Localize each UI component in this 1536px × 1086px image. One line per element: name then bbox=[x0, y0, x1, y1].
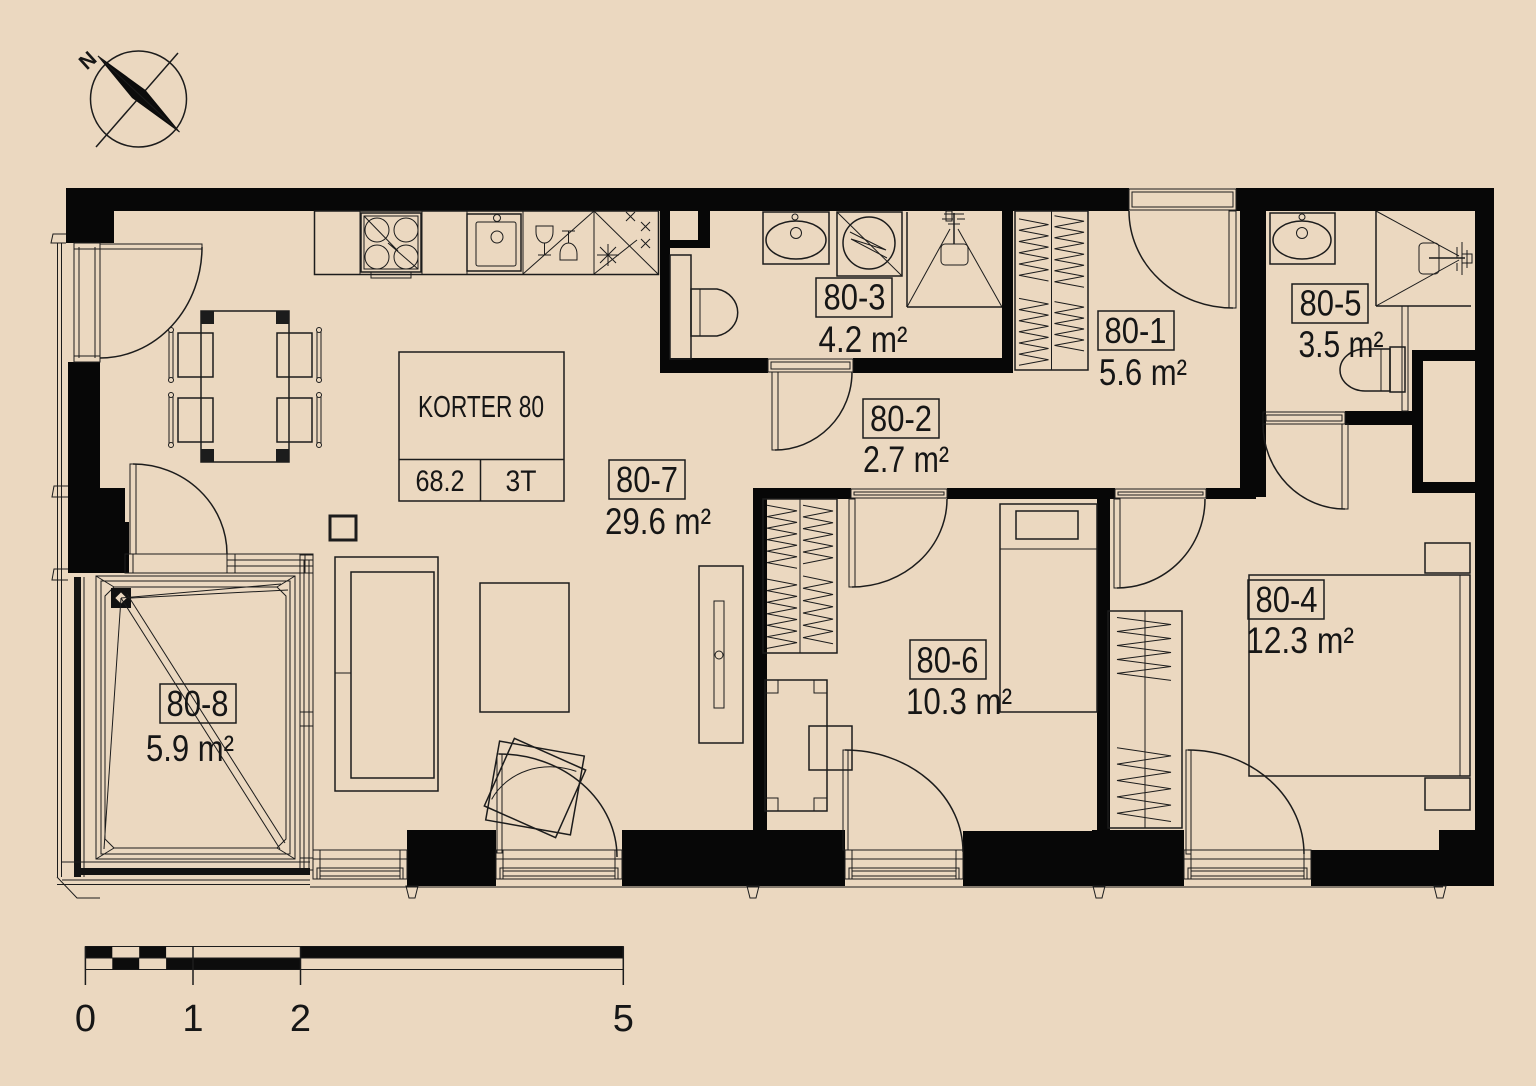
svg-text:3.5 m²: 3.5 m² bbox=[1299, 324, 1384, 365]
svg-text:0: 0 bbox=[75, 998, 96, 1040]
svg-text:2: 2 bbox=[290, 998, 311, 1040]
svg-text:1: 1 bbox=[182, 998, 203, 1040]
svg-text:2.7 m²: 2.7 m² bbox=[863, 439, 949, 480]
svg-text:KORTER 80: KORTER 80 bbox=[418, 389, 544, 424]
svg-text:5.9 m²: 5.9 m² bbox=[146, 728, 234, 769]
svg-text:4.2 m²: 4.2 m² bbox=[819, 319, 908, 360]
svg-text:29.6 m²: 29.6 m² bbox=[605, 501, 711, 542]
svg-text:80-3: 80-3 bbox=[824, 277, 886, 318]
svg-text:80-4: 80-4 bbox=[1256, 579, 1318, 620]
svg-text:80-8: 80-8 bbox=[167, 683, 229, 724]
svg-text:80-2: 80-2 bbox=[870, 398, 932, 439]
svg-text:N: N bbox=[75, 47, 102, 74]
svg-text:80-1: 80-1 bbox=[1105, 310, 1167, 351]
svg-text:3T: 3T bbox=[506, 465, 537, 498]
svg-text:80-7: 80-7 bbox=[616, 459, 678, 500]
svg-text:5.6 m²: 5.6 m² bbox=[1099, 352, 1187, 393]
svg-text:12.3 m²: 12.3 m² bbox=[1246, 620, 1354, 661]
svg-text:68.2: 68.2 bbox=[416, 465, 465, 498]
svg-text:80-5: 80-5 bbox=[1300, 283, 1362, 324]
svg-text:5: 5 bbox=[613, 998, 634, 1040]
svg-text:80-6: 80-6 bbox=[917, 640, 979, 681]
svg-text:10.3 m²: 10.3 m² bbox=[906, 681, 1012, 722]
